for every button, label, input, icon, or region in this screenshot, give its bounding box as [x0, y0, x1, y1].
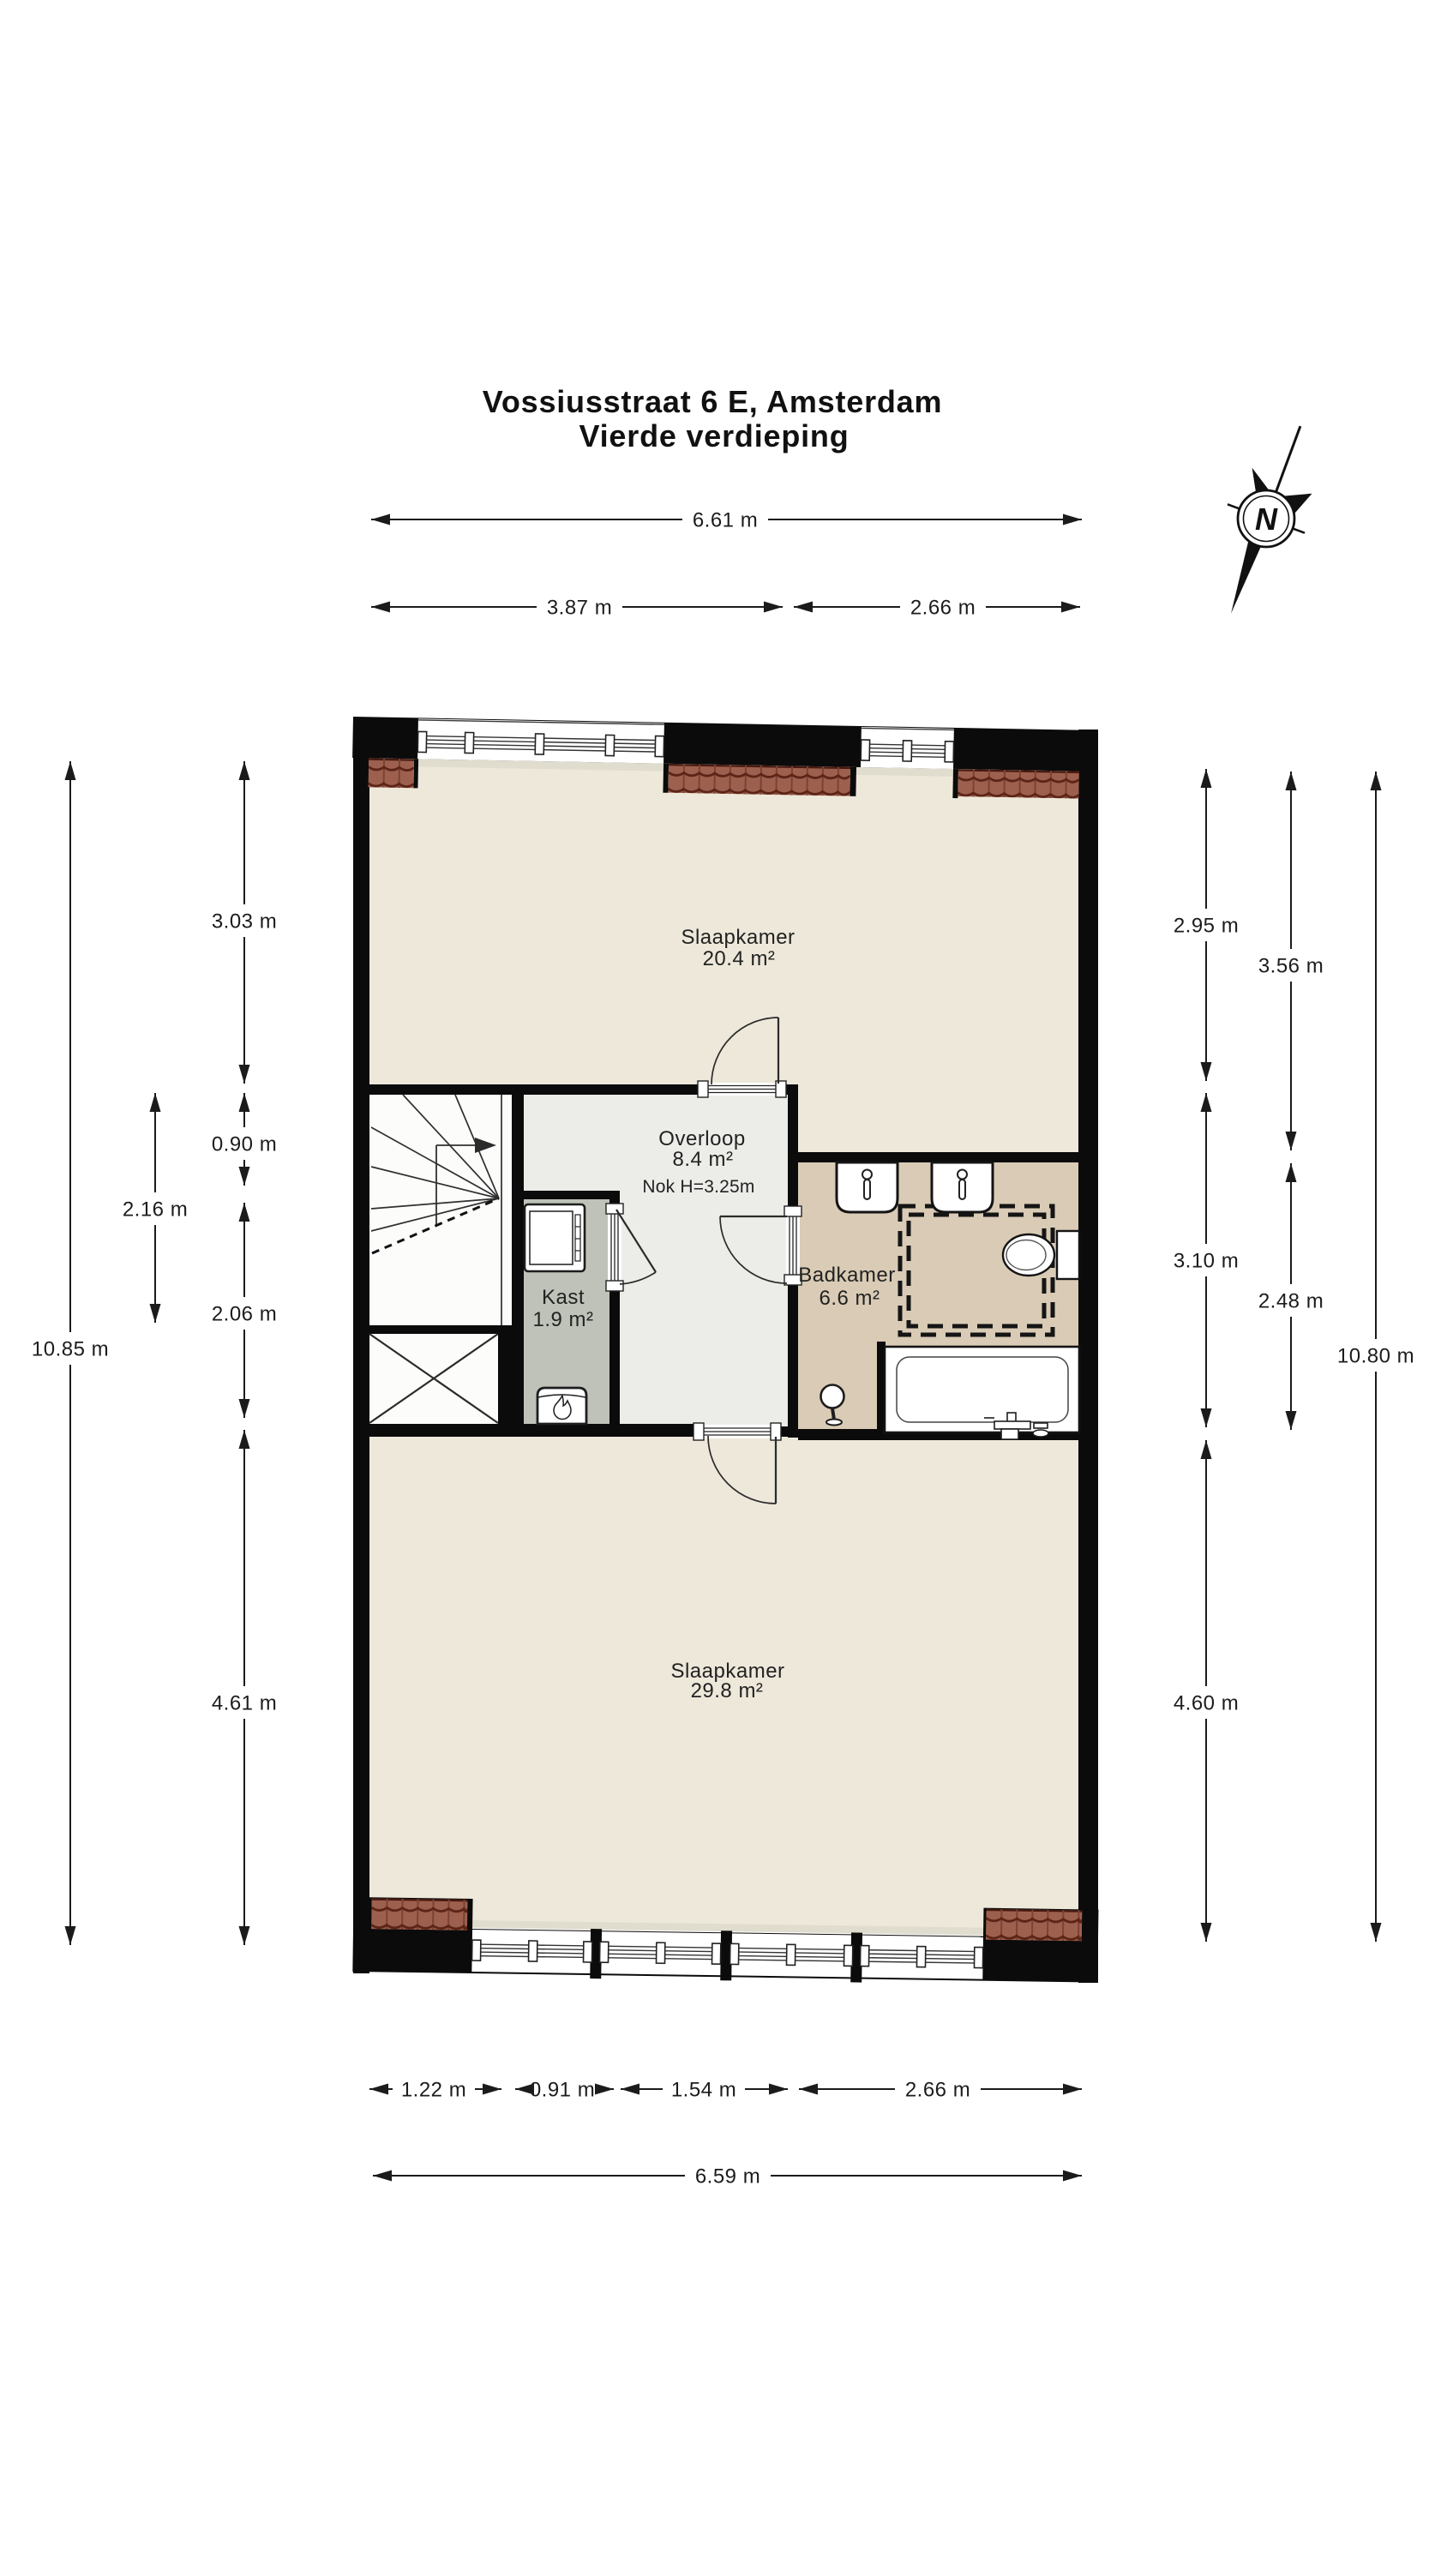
svg-text:3.10 m: 3.10 m [1174, 1250, 1239, 1273]
svg-text:8.4 m²: 8.4 m² [672, 1148, 733, 1171]
svg-text:0.91 m: 0.91 m [530, 2079, 595, 2102]
svg-text:10.85 m: 10.85 m [32, 1338, 109, 1361]
svg-text:0.90 m: 0.90 m [212, 1133, 277, 1156]
svg-text:Overloop: Overloop [658, 1127, 745, 1150]
svg-text:1.54 m: 1.54 m [671, 2079, 736, 2102]
svg-text:2.66 m: 2.66 m [910, 597, 976, 620]
svg-text:6.6 m²: 6.6 m² [819, 1287, 880, 1310]
svg-text:Kast: Kast [542, 1286, 585, 1309]
svg-text:6.61 m: 6.61 m [693, 509, 758, 532]
svg-text:29.8 m²: 29.8 m² [691, 1679, 764, 1702]
svg-text:Vossiusstraat 6 E, Amsterdam: Vossiusstraat 6 E, Amsterdam [483, 384, 943, 419]
svg-text:Nok H=3.25m: Nok H=3.25m [642, 1177, 754, 1197]
svg-text:N: N [1255, 501, 1278, 537]
svg-text:1.9 m²: 1.9 m² [532, 1308, 593, 1331]
svg-text:4.60 m: 4.60 m [1174, 1692, 1239, 1715]
svg-text:3.56 m: 3.56 m [1258, 955, 1324, 978]
svg-text:2.66 m: 2.66 m [905, 2079, 970, 2102]
svg-text:Badkamer: Badkamer [798, 1264, 895, 1287]
svg-text:3.87 m: 3.87 m [547, 597, 612, 620]
svg-text:2.06 m: 2.06 m [212, 1303, 277, 1326]
svg-text:10.80 m: 10.80 m [1337, 1345, 1414, 1368]
svg-text:1.22 m: 1.22 m [401, 2079, 466, 2102]
svg-text:3.03 m: 3.03 m [212, 910, 277, 934]
svg-text:2.48 m: 2.48 m [1258, 1290, 1324, 1313]
svg-text:Vierde verdieping: Vierde verdieping [579, 418, 849, 453]
svg-text:2.95 m: 2.95 m [1174, 915, 1239, 938]
svg-text:4.61 m: 4.61 m [212, 1692, 277, 1715]
svg-text:Slaapkamer: Slaapkamer [681, 926, 795, 949]
svg-text:20.4 m²: 20.4 m² [703, 947, 776, 970]
svg-text:6.59 m: 6.59 m [695, 2165, 760, 2189]
svg-text:2.16 m: 2.16 m [123, 1198, 188, 1222]
